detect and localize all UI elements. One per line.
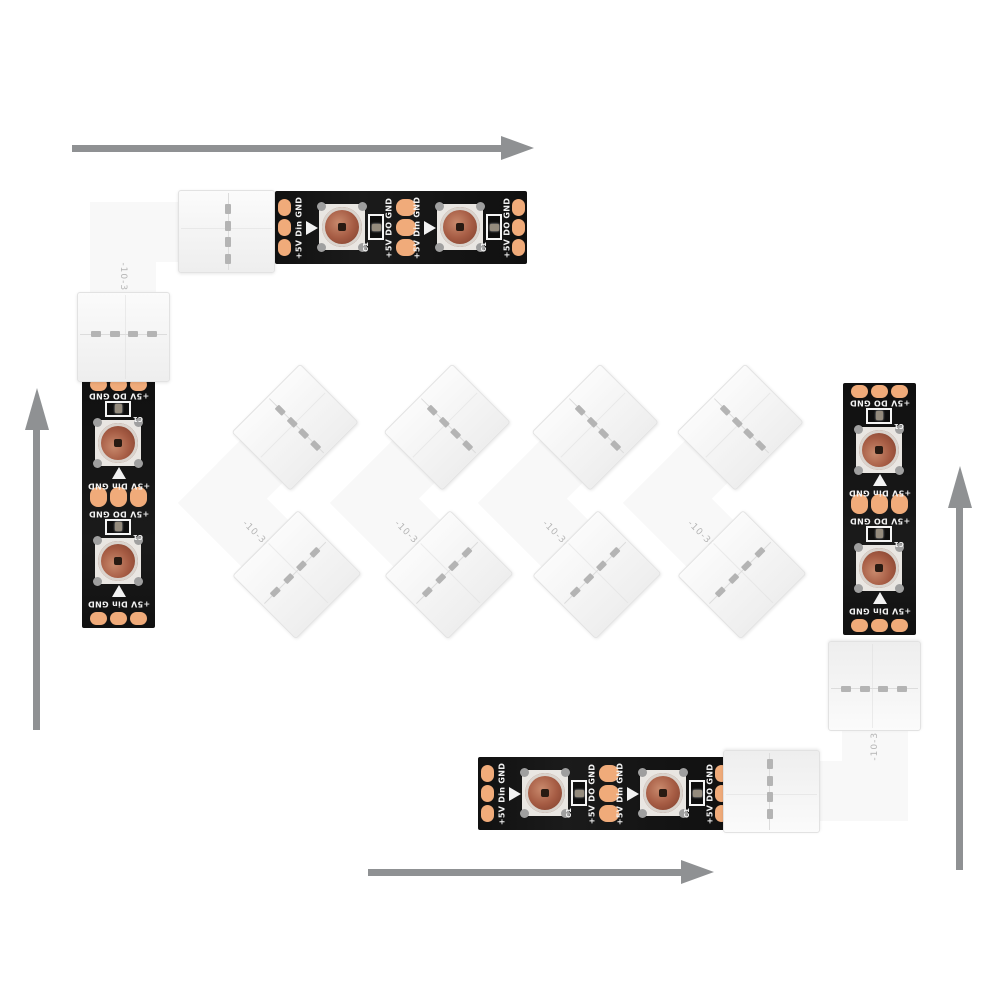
corner-connector-bottom-right: -10-3P xyxy=(718,638,938,838)
clip-pin-mark xyxy=(110,331,120,337)
capacitor-component xyxy=(486,214,502,240)
clip-pin-mark xyxy=(91,331,101,337)
copper-pad xyxy=(871,619,888,632)
pcb-input-label: +5V Din GND xyxy=(82,599,155,609)
led-pin xyxy=(358,202,367,211)
clip-pin-mark xyxy=(841,687,851,693)
strip-clip xyxy=(723,750,820,833)
led-pin xyxy=(93,536,102,545)
led-pin xyxy=(134,577,143,586)
pcb-output-label: +5V DO GND xyxy=(705,757,715,830)
arrow-head-right-icon xyxy=(501,136,534,160)
led-pin xyxy=(520,809,529,818)
led-pin xyxy=(93,577,102,586)
arrow-shaft xyxy=(33,428,40,730)
pcb-input-label: +5V Din GND xyxy=(615,757,625,830)
pcb-output-label: +5V DO GND xyxy=(384,191,394,264)
led-pin xyxy=(435,243,444,252)
component-label: C1 xyxy=(128,415,148,423)
clip-seam xyxy=(420,544,480,604)
direction-triangle-icon xyxy=(112,585,126,597)
arrow-head-up-icon xyxy=(948,466,972,508)
led-pin xyxy=(435,202,444,211)
clip-pin-mark xyxy=(768,776,774,786)
led-die xyxy=(875,446,883,454)
direction-triangle-icon xyxy=(424,221,436,235)
end-copper-pad xyxy=(851,385,868,398)
component-label: C1 xyxy=(683,803,691,823)
clip-pin-mark xyxy=(860,687,870,693)
pcb-output-label: +5V DO GND xyxy=(82,391,155,401)
capacitor-body xyxy=(876,411,883,420)
clip-seam xyxy=(268,544,328,604)
end-copper-pad xyxy=(512,239,525,256)
component-label: C1 xyxy=(889,422,909,430)
led-die xyxy=(875,564,883,572)
led-die xyxy=(456,223,464,231)
clip-pin-mark xyxy=(225,254,231,264)
copper-pad xyxy=(90,612,107,625)
capacitor-body xyxy=(876,529,883,538)
led-strip-left: +5V Din GNDC1+5V DO GND+5V Din GNDC1+5V … xyxy=(82,376,155,628)
clip-pin-mark xyxy=(421,586,432,597)
led-pin xyxy=(520,768,529,777)
led-die xyxy=(659,789,667,797)
capacitor-body xyxy=(490,224,499,231)
clip-pin-mark xyxy=(225,237,231,247)
led-pin xyxy=(854,543,863,552)
led-pin xyxy=(476,202,485,211)
strip-clip xyxy=(178,190,275,273)
pcb-output-label: +5V DO GND xyxy=(502,191,512,264)
led-strip-connector-product-image: +5V Din GNDC1+5V DO GND+5V Din GNDC1+5V … xyxy=(0,0,1000,1000)
copper-pad xyxy=(891,619,908,632)
copper-pad xyxy=(481,765,494,782)
capacitor-body xyxy=(693,790,702,797)
strip-clip xyxy=(828,641,921,731)
ws2812b-led xyxy=(95,538,141,584)
pcb-input-label: +5V Din GND xyxy=(843,606,916,616)
clip-pin-mark xyxy=(128,331,138,337)
arrow-head-up-icon xyxy=(25,388,49,430)
clip-seam xyxy=(713,544,773,604)
led-pin xyxy=(93,418,102,427)
clip-pin-mark xyxy=(225,204,231,214)
direction-triangle-icon xyxy=(873,474,887,486)
component-label: C1 xyxy=(128,533,148,541)
clip-pin-mark xyxy=(147,331,157,337)
direction-triangle-icon xyxy=(873,592,887,604)
arrow-shaft xyxy=(72,145,502,152)
capacitor-body xyxy=(372,224,381,231)
led-pin xyxy=(317,202,326,211)
led-pin xyxy=(854,425,863,434)
capacitor-body xyxy=(115,404,122,413)
pcb-input-label: +5V Din GND xyxy=(497,757,507,830)
direction-triangle-icon xyxy=(112,467,126,479)
led-die xyxy=(338,223,346,231)
pcb-input-label: +5V Din GND xyxy=(294,191,304,264)
component-label: C1 xyxy=(480,237,488,257)
led-pin xyxy=(317,243,326,252)
clip-seam xyxy=(125,295,126,379)
arrow-shaft xyxy=(368,869,682,876)
pcb-input-label: +5V Din GND xyxy=(82,481,155,491)
clip-pin-mark xyxy=(878,687,888,693)
pcb-output-label: +5V DO GND xyxy=(587,757,597,830)
ws2812b-led xyxy=(640,770,686,816)
led-pin xyxy=(93,459,102,468)
copper-pad xyxy=(481,785,494,802)
clip-pin-mark xyxy=(768,809,774,819)
clip-pin-mark xyxy=(269,586,280,597)
clip-pin-mark xyxy=(897,687,907,693)
led-pin xyxy=(638,768,647,777)
copper-pad xyxy=(851,619,868,632)
clip-seam xyxy=(873,644,874,728)
led-pin xyxy=(638,809,647,818)
ws2812b-led xyxy=(437,204,483,250)
direction-triangle-icon xyxy=(306,221,318,235)
capacitor-component xyxy=(571,780,587,806)
led-die xyxy=(114,557,122,565)
led-strip-bottom: +5V Din GNDC1+5V DO GND+5V Din GNDC1+5V … xyxy=(478,757,730,830)
led-die xyxy=(114,439,122,447)
clip-pin-mark xyxy=(768,759,774,769)
component-label: C1 xyxy=(362,237,370,257)
end-copper-pad xyxy=(512,199,525,216)
strip-clip xyxy=(77,292,170,382)
led-pin xyxy=(561,768,570,777)
capacitor-component xyxy=(689,780,705,806)
led-die xyxy=(541,789,549,797)
led-pin xyxy=(895,584,904,593)
ws2812b-led xyxy=(522,770,568,816)
led-pin xyxy=(679,768,688,777)
ws2812b-led xyxy=(856,427,902,473)
arrow-head-right-icon xyxy=(681,860,714,884)
clip-seam xyxy=(568,544,628,604)
end-copper-pad xyxy=(512,219,525,236)
ws2812b-led xyxy=(319,204,365,250)
end-copper-pad xyxy=(891,385,908,398)
copper-pad xyxy=(130,612,147,625)
clip-pin-mark xyxy=(569,586,580,597)
end-copper-pad xyxy=(871,385,888,398)
component-label: C1 xyxy=(565,803,573,823)
copper-pad xyxy=(110,612,127,625)
pcb-output-label: +5V DO GND xyxy=(843,398,916,408)
clip-pin-mark xyxy=(225,221,231,231)
pcb-input-label: +5V Din GND xyxy=(412,191,422,264)
led-pin xyxy=(854,584,863,593)
pcb-output-label: +5V DO GND xyxy=(82,509,155,519)
ws2812b-led xyxy=(856,545,902,591)
capacitor-component xyxy=(368,214,384,240)
arrow-shaft xyxy=(956,506,963,870)
capacitor-body xyxy=(115,522,122,531)
led-pin xyxy=(895,466,904,475)
led-strip-top: +5V Din GNDC1+5V DO GND+5V Din GNDC1+5V … xyxy=(275,191,527,264)
component-label: C1 xyxy=(889,540,909,548)
copper-pad xyxy=(481,805,494,822)
led-pin xyxy=(134,459,143,468)
direction-triangle-icon xyxy=(509,787,521,801)
direction-triangle-icon xyxy=(627,787,639,801)
ws2812b-led xyxy=(95,420,141,466)
clip-pin-mark xyxy=(714,586,725,597)
capacitor-body xyxy=(575,790,584,797)
clip-pin-mark xyxy=(768,792,774,802)
corner-connector-top-left: -10-3P xyxy=(60,185,280,385)
